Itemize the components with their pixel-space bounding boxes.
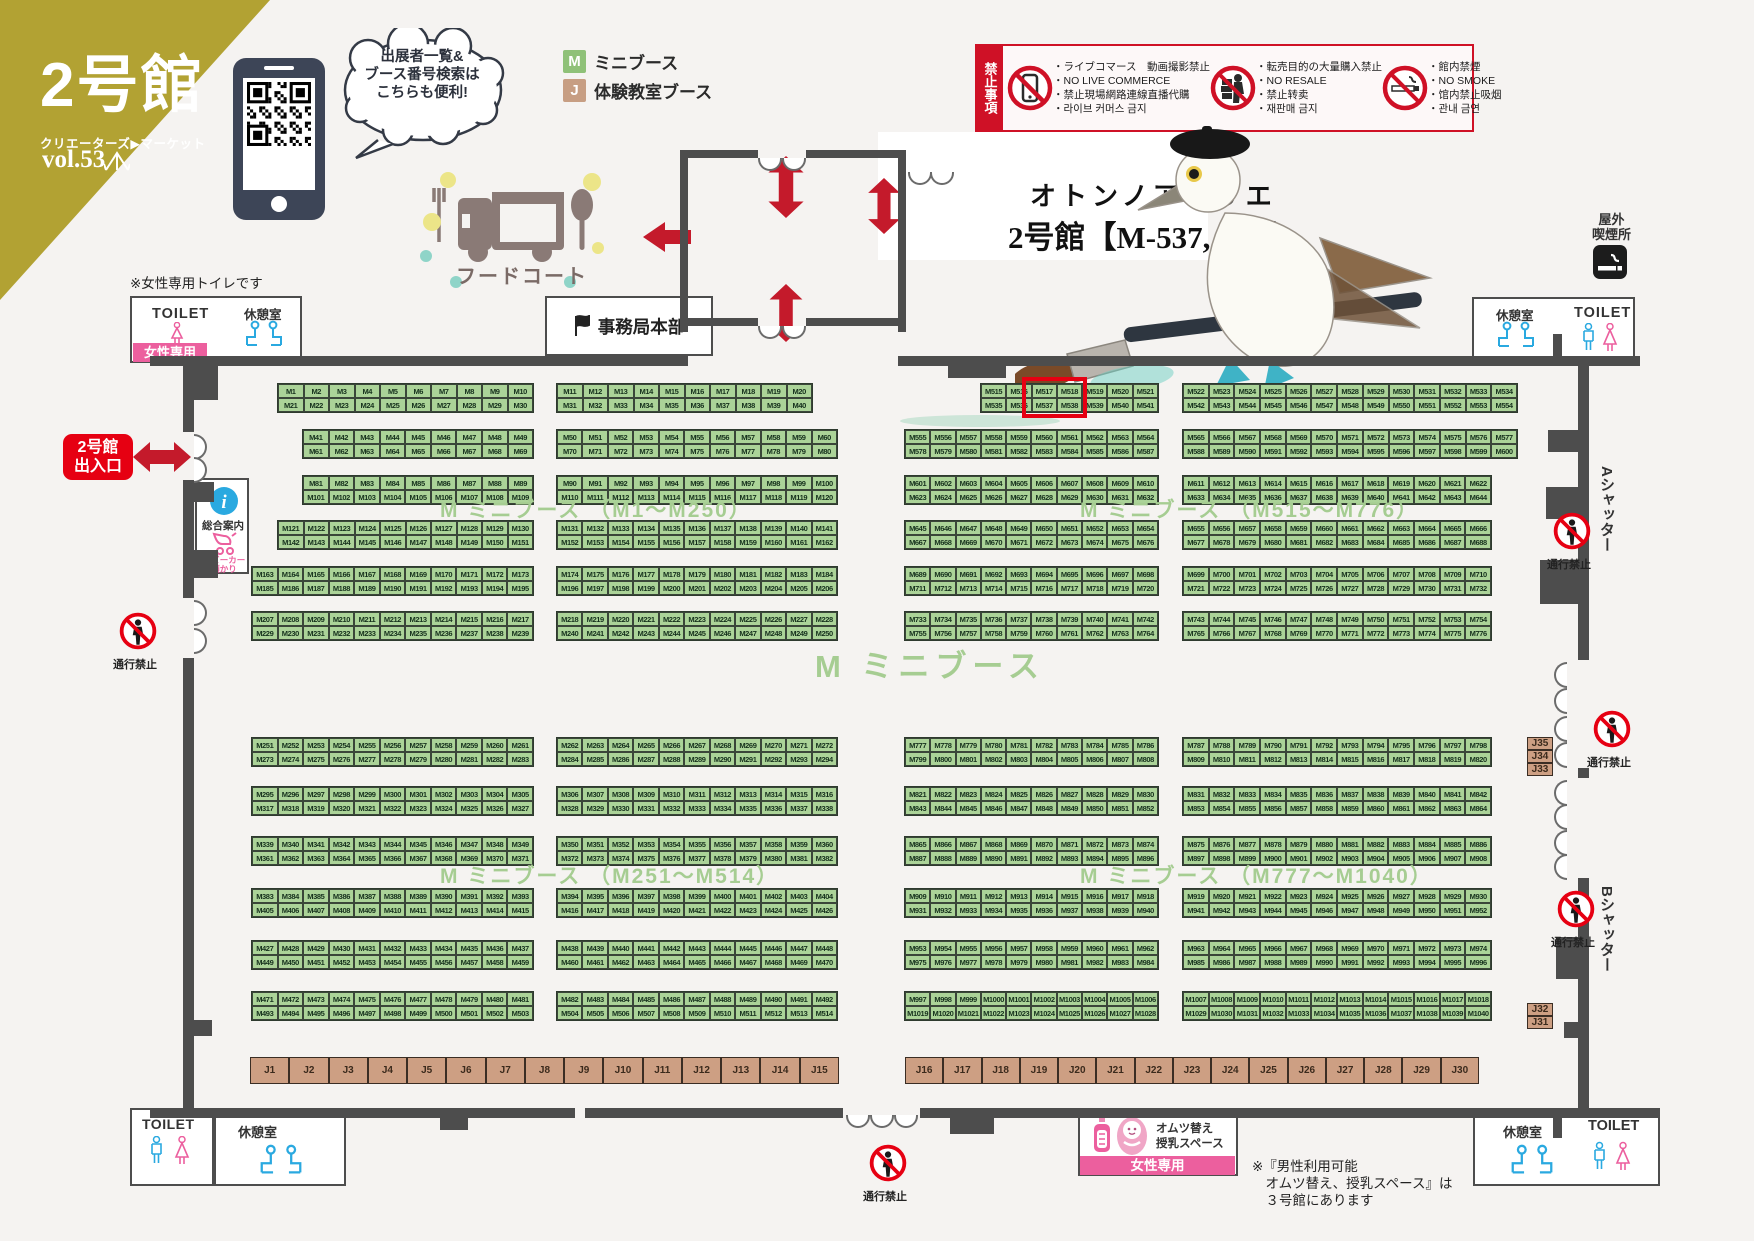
booth-cell: M1015 xyxy=(1388,992,1414,1006)
booth-cell: M515 xyxy=(981,384,1006,398)
booth-cell: M467 xyxy=(735,955,760,969)
booth-cell: M805 xyxy=(1057,752,1082,766)
booth-cell: M313 xyxy=(735,787,760,801)
booth-strip: M394M395M396M397M398M399M400M401M402M403… xyxy=(557,889,837,917)
booth-cell: M720 xyxy=(1133,581,1158,595)
booth-cell: M446 xyxy=(761,941,786,955)
booth-cell: M982 xyxy=(1082,955,1107,969)
wall xyxy=(920,1108,1660,1118)
door-arc-icon xyxy=(1554,804,1567,830)
booth-cell: M928 xyxy=(1414,889,1440,903)
booth-cell: M1022 xyxy=(981,1006,1006,1020)
booth-cell: M590 xyxy=(1234,444,1260,458)
booth-cell: M970 xyxy=(1363,941,1389,955)
booth-cell: M854 xyxy=(1209,801,1235,815)
booth-cell: M822 xyxy=(930,787,955,801)
booth-cell: M827 xyxy=(1057,787,1082,801)
booth-cell: M528 xyxy=(1337,384,1363,398)
booth-cell: M202 xyxy=(710,581,735,595)
wall xyxy=(688,318,758,326)
booth-cell: M865 xyxy=(905,837,930,851)
booth-cell: M209 xyxy=(303,612,329,626)
booth-cell: M258 xyxy=(431,738,457,752)
booth-cell: M284 xyxy=(557,752,582,766)
booth-cell: M5 xyxy=(380,384,406,398)
booth-cell: M863 xyxy=(1440,801,1466,815)
booth-strip: M41M42M43M44M45M46M47M48M49M61M62M63M64M… xyxy=(303,430,533,458)
booth-strip: M471M472M473M474M475M476M477M478M479M480… xyxy=(252,992,533,1020)
booth-cell: M849 xyxy=(1057,801,1082,815)
booth-cell: M45 xyxy=(405,430,431,444)
booth-cell: M175 xyxy=(582,567,607,581)
booth-cell: M818 xyxy=(1414,752,1440,766)
booth-cell: M918 xyxy=(1133,889,1158,903)
booth-cell: M440 xyxy=(608,941,633,955)
booth-cell: M165 xyxy=(303,567,329,581)
booth-cell: M628 xyxy=(1031,490,1056,504)
booth-cell: M39 xyxy=(761,398,787,412)
booth-cell: M208 xyxy=(278,612,304,626)
booth-cell: M514 xyxy=(812,1006,837,1020)
j-booth-cell: J12 xyxy=(682,1057,721,1084)
booth-cell: M831 xyxy=(1183,787,1209,801)
booth-cell: M825 xyxy=(1006,787,1031,801)
booth-cell: M603 xyxy=(956,476,981,490)
booth-cell: M930 xyxy=(1465,889,1491,903)
booth-cell: M26 xyxy=(406,398,432,412)
booth-cell: M238 xyxy=(482,626,508,640)
booth-cell: M552 xyxy=(1440,398,1466,412)
booth-cell: M315 xyxy=(786,787,811,801)
booth-cell: M406 xyxy=(278,903,304,917)
booth-cell: M281 xyxy=(456,752,482,766)
booth-cell: M829 xyxy=(1107,787,1132,801)
booth-cell: M981 xyxy=(1057,955,1082,969)
booth-cell: M195 xyxy=(507,581,533,595)
booth-cell: M270 xyxy=(761,738,786,752)
booth-cell: M318 xyxy=(278,801,304,815)
booth-cell: M815 xyxy=(1337,752,1363,766)
booth-cell: M819 xyxy=(1440,752,1466,766)
no-entry-label: 通行禁止 xyxy=(112,656,158,672)
booth-cell: M813 xyxy=(1286,752,1312,766)
door-arc-icon xyxy=(1554,662,1567,688)
booth-cell: M549 xyxy=(1363,398,1389,412)
booth-cell: M53 xyxy=(633,430,658,444)
booth-cell: M802 xyxy=(981,752,1006,766)
booth-cell: M172 xyxy=(482,567,508,581)
j-booth-cell: J5 xyxy=(407,1057,446,1084)
booth-cell: M598 xyxy=(1440,444,1466,458)
booth-cell: M1005 xyxy=(1107,992,1132,1006)
booth-strip: M427M428M429M430M431M432M433M434M435M436… xyxy=(252,941,533,969)
booth-cell: M448 xyxy=(812,941,837,955)
booth-cell: M934 xyxy=(981,903,1006,917)
booth-cell: M1028 xyxy=(1133,1006,1158,1020)
booth-cell: M16 xyxy=(685,384,711,398)
booth-cell: M415 xyxy=(507,903,533,917)
booth-cell: M875 xyxy=(1183,837,1209,851)
booth-cell: M416 xyxy=(557,903,582,917)
booth-cell: M560 xyxy=(1031,430,1056,444)
booth-cell: M748 xyxy=(1311,612,1337,626)
door-arc-icon xyxy=(1554,688,1567,714)
booth-cell: M153 xyxy=(582,535,607,549)
booth-cell: M120 xyxy=(812,490,837,504)
women-only-banner: 女性専用 xyxy=(1080,1156,1235,1175)
booth-cell: M866 xyxy=(930,837,955,851)
booth-cell: M253 xyxy=(303,738,329,752)
booth-cell: M458 xyxy=(482,955,508,969)
booth-strip: M383M384M385M386M387M388M389M390M391M392… xyxy=(252,889,533,917)
booth-cell: M968 xyxy=(1311,941,1337,955)
booth-cell: M615 xyxy=(1286,476,1312,490)
booth-cell: M15 xyxy=(659,384,685,398)
booth-strip: M787M788M789M790M791M792M793M794M795M796… xyxy=(1183,738,1491,766)
booth-cell: M338 xyxy=(812,801,837,815)
booth-cell: M737 xyxy=(1006,612,1031,626)
booth-cell: M614 xyxy=(1260,476,1286,490)
booth-strip: M522M523M524M525M526M527M528M529M530M531… xyxy=(1183,384,1517,412)
no-entry-label: 通行禁止 xyxy=(1546,556,1592,572)
booth-cell: M417 xyxy=(582,903,607,917)
booth-cell: M714 xyxy=(981,581,1006,595)
booth-cell: M570 xyxy=(1311,430,1337,444)
booth-cell: M1013 xyxy=(1337,992,1363,1006)
booth-cell: M18 xyxy=(736,384,762,398)
no-entry-icon xyxy=(1593,710,1631,748)
booth-cell: M693 xyxy=(1006,567,1031,581)
booth-cell: M935 xyxy=(1006,903,1031,917)
booth-cell: M232 xyxy=(329,626,355,640)
booth-cell: M170 xyxy=(431,567,457,581)
booth-cell: M936 xyxy=(1031,903,1056,917)
booth-cell: M85 xyxy=(405,476,431,490)
booth-cell: M486 xyxy=(659,992,684,1006)
booth-strip: M218M219M220M221M222M223M224M225M226M227… xyxy=(557,612,837,640)
booth-cell: M756 xyxy=(930,626,955,640)
booth-cell: M924 xyxy=(1311,889,1337,903)
booth-cell: M256 xyxy=(380,738,406,752)
booth-cell: M789 xyxy=(1234,738,1260,752)
booth-cell: M798 xyxy=(1465,738,1491,752)
booth-cell: M972 xyxy=(1414,941,1440,955)
booth-cell: M716 xyxy=(1031,581,1056,595)
booth-cell: M876 xyxy=(1209,837,1235,851)
j-booth-cell: J16 xyxy=(905,1057,943,1084)
booth-cell: M203 xyxy=(735,581,760,595)
booth-cell: M455 xyxy=(405,955,431,969)
booth-cell: M845 xyxy=(956,801,981,815)
booth-cell: M619 xyxy=(1388,476,1414,490)
booth-cell: M917 xyxy=(1107,889,1132,903)
booth-cell: M699 xyxy=(1183,567,1209,581)
booth-cell: M755 xyxy=(905,626,930,640)
booth-cell: M314 xyxy=(761,787,786,801)
j-booth-cell: J30 xyxy=(1441,1057,1479,1084)
booth-cell: M352 xyxy=(608,837,633,851)
booth-cell: M119 xyxy=(786,490,811,504)
door-arc-icon xyxy=(894,1115,918,1128)
booth-cell: M199 xyxy=(633,581,658,595)
booth-cell: M998 xyxy=(930,992,955,1006)
booth-cell: M943 xyxy=(1234,903,1260,917)
booth-cell: M489 xyxy=(735,992,760,1006)
booth-cell: M760 xyxy=(1031,626,1056,640)
j-booth-cell: J15 xyxy=(800,1057,839,1084)
booth-cell: M503 xyxy=(507,1006,533,1020)
booth-cell: M311 xyxy=(684,787,709,801)
booth-cell: M31 xyxy=(557,398,583,412)
booth-cell: M260 xyxy=(482,738,508,752)
booth-cell: M196 xyxy=(557,581,582,595)
booth-strip: M831M832M833M834M835M836M837M838M839M840… xyxy=(1183,787,1491,815)
booth-cell: M512 xyxy=(761,1006,786,1020)
booth-cell: M293 xyxy=(786,752,811,766)
booth-cell: M252 xyxy=(278,738,304,752)
booth-cell: M837 xyxy=(1337,787,1363,801)
booth-cell: M884 xyxy=(1414,837,1440,851)
booth-cell: M687 xyxy=(1440,535,1466,549)
booth-cell: M344 xyxy=(380,837,406,851)
booth-cell: M179 xyxy=(684,567,709,581)
section-label: M ミニブース xyxy=(815,641,1045,686)
booth-cell: M402 xyxy=(761,889,786,903)
booth-cell: M393 xyxy=(507,889,533,903)
booth-cell: M721 xyxy=(1183,581,1209,595)
booth-cell: M557 xyxy=(956,430,981,444)
booth-cell: M160 xyxy=(761,535,786,549)
booth-cell: M786 xyxy=(1133,738,1158,752)
booth-cell: M102 xyxy=(329,490,355,504)
no-entry-sign: 通行禁止 xyxy=(868,1144,908,1204)
booth-cell: M893 xyxy=(1057,851,1082,865)
rest-room-icon xyxy=(242,320,286,350)
booth-cell: M103 xyxy=(354,490,380,504)
man-icon xyxy=(150,1136,163,1166)
booth-cell: M187 xyxy=(303,581,329,595)
wall xyxy=(806,150,898,158)
booth-cell: M996 xyxy=(1465,955,1491,969)
booth-cell: M559 xyxy=(1006,430,1031,444)
booth-cell: M602 xyxy=(930,476,955,490)
booth-cell: M1036 xyxy=(1363,1006,1389,1020)
rest-toilet-box-bottom-right: 休憩室 TOILET xyxy=(1473,1108,1660,1186)
booth-cell: M294 xyxy=(812,752,837,766)
booth-cell: M676 xyxy=(1133,535,1158,549)
booth-cell: M964 xyxy=(1209,941,1235,955)
booth-cell: M765 xyxy=(1183,626,1209,640)
info-label: 総合案内 xyxy=(202,518,244,533)
booth-cell: M717 xyxy=(1057,581,1082,595)
booth-cell: M960 xyxy=(1082,941,1107,955)
booth-cell: M684 xyxy=(1363,535,1389,549)
booth-cell: M250 xyxy=(812,626,837,640)
booth-cell: M181 xyxy=(735,567,760,581)
booth-cell: M509 xyxy=(684,1006,709,1020)
booth-cell: M140 xyxy=(786,521,811,535)
booth-cell: M941 xyxy=(1183,903,1209,917)
booth-cell: M60 xyxy=(812,430,837,444)
booth-cell: M587 xyxy=(1133,444,1158,458)
booth-cell: M268 xyxy=(710,738,735,752)
wall xyxy=(194,366,218,400)
booth-cell: M280 xyxy=(431,752,457,766)
toilet-box-top-left: TOILET 女性専用 休憩室 xyxy=(130,296,302,363)
booth-cell: M776 xyxy=(1465,626,1491,640)
smoking-area-icon xyxy=(1593,245,1627,279)
booth-cell: M228 xyxy=(812,612,837,626)
booth-cell: M648 xyxy=(981,521,1006,535)
section-label: M ミニブース （M1〜M250） xyxy=(440,494,752,524)
booth-cell: M156 xyxy=(659,535,684,549)
booth-cell: M496 xyxy=(329,1006,355,1020)
booth-cell: M251 xyxy=(252,738,278,752)
booth-cell: M364 xyxy=(329,851,355,865)
booth-cell: M149 xyxy=(457,535,483,549)
booth-cell: M855 xyxy=(1234,801,1260,815)
booth-cell: M879 xyxy=(1286,837,1312,851)
booth-cell: M1019 xyxy=(905,1006,930,1020)
booth-cell: M722 xyxy=(1209,581,1235,595)
booth-cell: M540 xyxy=(1107,398,1132,412)
booth-cell: M1007 xyxy=(1183,992,1209,1006)
booth-cell: M349 xyxy=(507,837,533,851)
legend-workshop-booth: J 体験教室ブース xyxy=(563,78,712,103)
booth-cell: M308 xyxy=(608,787,633,801)
booth-cell: M848 xyxy=(1031,801,1056,815)
booth-cell: M833 xyxy=(1234,787,1260,801)
booth-cell: M1000 xyxy=(981,992,1006,1006)
booth-cell: M216 xyxy=(482,612,508,626)
booth-cell: M390 xyxy=(431,889,457,903)
booth-strip: M295M296M297M298M299M300M301M302M303M304… xyxy=(252,787,533,815)
booth-cell: M331 xyxy=(633,801,658,815)
booth-cell: M150 xyxy=(482,535,508,549)
outdoor-smoking-label: 屋外喫煙所 xyxy=(1592,212,1631,242)
booth-cell: M291 xyxy=(735,752,760,766)
booth-cell: M297 xyxy=(303,787,329,801)
booth-cell: M243 xyxy=(633,626,658,640)
booth-cell: M554 xyxy=(1491,398,1517,412)
booth-cell: M326 xyxy=(482,801,508,815)
booth-cell: M796 xyxy=(1414,738,1440,752)
booth-cell: M488 xyxy=(710,992,735,1006)
booth-cell: M1020 xyxy=(930,1006,955,1020)
booth-cell: M282 xyxy=(482,752,508,766)
booth-cell: M973 xyxy=(1440,941,1466,955)
rest-room-label: 休憩室 xyxy=(1503,1122,1542,1141)
booth-cell: M859 xyxy=(1337,801,1363,815)
booth-cell: M33 xyxy=(608,398,634,412)
booth-cell: M921 xyxy=(1234,889,1260,903)
booth-cell: M57 xyxy=(735,430,760,444)
booth-cell: M1001 xyxy=(1006,992,1031,1006)
booth-cell: M276 xyxy=(329,752,355,766)
booth-cell: M58 xyxy=(761,430,786,444)
booth-cell: M697 xyxy=(1107,567,1132,581)
booth-cell: M328 xyxy=(557,801,582,815)
booth-cell: M278 xyxy=(380,752,406,766)
booth-cell: M398 xyxy=(659,889,684,903)
booth-cell: M211 xyxy=(354,612,380,626)
booth-cell: M604 xyxy=(981,476,1006,490)
door-arc-icon xyxy=(1554,854,1567,880)
booth-cell: M781 xyxy=(1006,738,1031,752)
booth-cell: M32 xyxy=(583,398,609,412)
booth-cell: M237 xyxy=(456,626,482,640)
door-arc-icon xyxy=(194,600,207,626)
j-booth-cell: J20 xyxy=(1058,1057,1096,1084)
booth-cell: M828 xyxy=(1082,787,1107,801)
booth-cell: M611 xyxy=(1183,476,1209,490)
booth-cell: M74 xyxy=(659,444,684,458)
booth-cell: M980 xyxy=(1031,955,1056,969)
rest-room-icon xyxy=(1494,321,1538,351)
booth-cell: M492 xyxy=(812,992,837,1006)
booth-cell: M597 xyxy=(1414,444,1440,458)
prohibited-title-tab: 禁止事項 xyxy=(977,46,1003,130)
booth-cell: M14 xyxy=(634,384,660,398)
booth-cell: M567 xyxy=(1234,430,1260,444)
booth-cell: M25 xyxy=(380,398,406,412)
booth-cell: M332 xyxy=(659,801,684,815)
booth-cell: M703 xyxy=(1286,567,1312,581)
j-booth-cell: J6 xyxy=(446,1057,485,1084)
no-entry-icon xyxy=(869,1144,907,1182)
booth-cell: M177 xyxy=(633,567,658,581)
booth-cell: M583 xyxy=(1031,444,1056,458)
booth-cell: M118 xyxy=(761,490,786,504)
booth-cell: M54 xyxy=(659,430,684,444)
booth-cell: M741 xyxy=(1107,612,1132,626)
booth-cell: M382 xyxy=(812,851,837,865)
booth-cell: M322 xyxy=(380,801,406,815)
booth-cell: M367 xyxy=(405,851,431,865)
j-booth-cell: J28 xyxy=(1364,1057,1402,1084)
booth-cell: M838 xyxy=(1363,787,1389,801)
booth-cell: M694 xyxy=(1031,567,1056,581)
booth-cell: M76 xyxy=(710,444,735,458)
booth-cell: M222 xyxy=(659,612,684,626)
booth-strip: M306M307M308M309M310M311M312M313M314M315… xyxy=(557,787,837,815)
booth-cell: M966 xyxy=(1260,941,1286,955)
booth-cell: M139 xyxy=(761,521,786,535)
bubble-text: 出展者一覧&ブース番号検索はこちらも便利! xyxy=(352,48,492,102)
booth-strip: M821M822M823M824M825M826M827M828M829M830… xyxy=(905,787,1158,815)
booth-cell: M267 xyxy=(684,738,709,752)
booth-cell: M731 xyxy=(1440,581,1466,595)
booth-cell: M235 xyxy=(405,626,431,640)
booth-cell: M457 xyxy=(456,955,482,969)
wall xyxy=(1548,430,1578,452)
booth-cell: M325 xyxy=(456,801,482,815)
booth-cell: M532 xyxy=(1440,384,1466,398)
booth-cell: M783 xyxy=(1057,738,1082,752)
booth-cell: M1031 xyxy=(1234,1006,1260,1020)
booth-cell: M1008 xyxy=(1209,992,1235,1006)
booth-cell: M761 xyxy=(1057,626,1082,640)
booth-cell: M581 xyxy=(981,444,1006,458)
booth-cell: M389 xyxy=(405,889,431,903)
booth-cell: M391 xyxy=(456,889,482,903)
booth-cell: M736 xyxy=(981,612,1006,626)
booth-cell: M617 xyxy=(1337,476,1363,490)
booth-cell: M459 xyxy=(507,955,533,969)
booth-cell: M430 xyxy=(329,941,355,955)
booth-cell: M624 xyxy=(930,490,955,504)
booth-cell: M1010 xyxy=(1260,992,1286,1006)
